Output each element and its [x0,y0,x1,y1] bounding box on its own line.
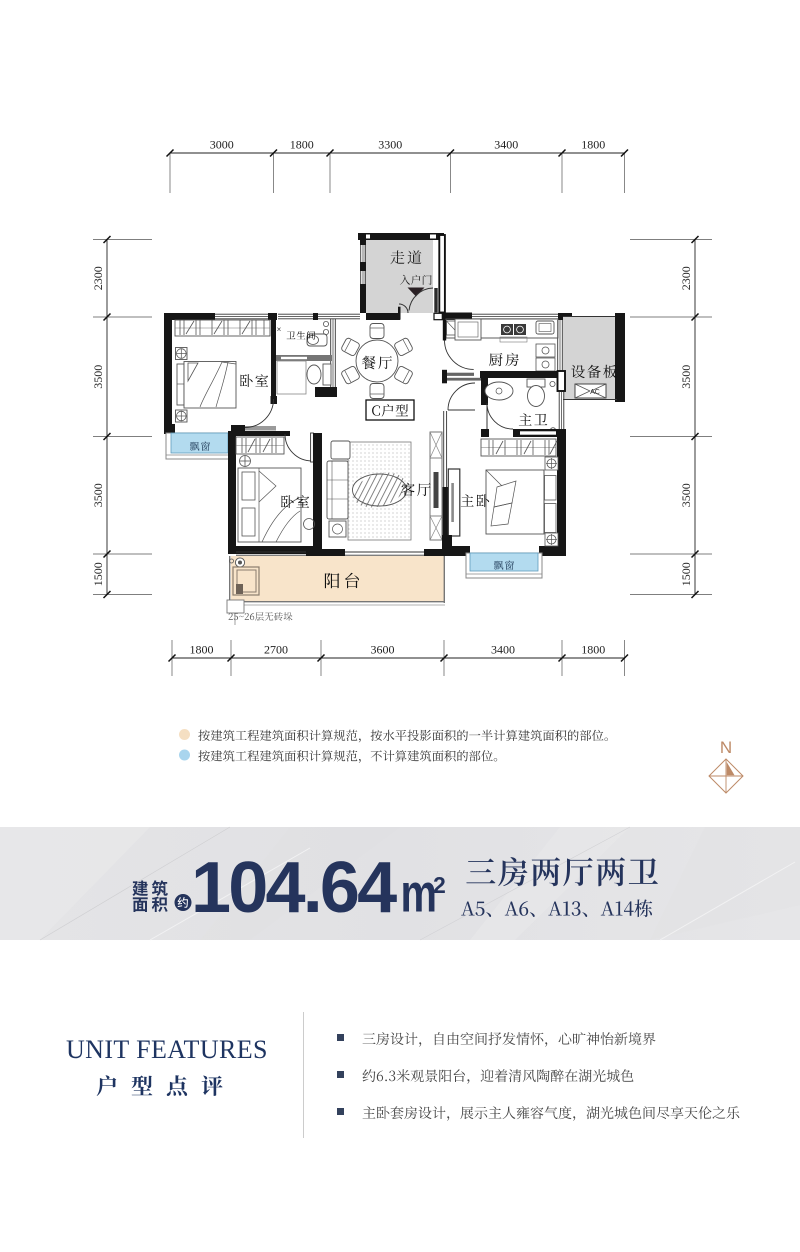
svg-text:1800: 1800 [190,643,214,657]
svg-text:×: × [277,325,282,334]
svg-text:1800: 1800 [581,643,605,657]
svg-text:2700: 2700 [264,643,288,657]
svg-text:2300: 2300 [91,266,105,290]
svg-text:104.64: 104.64 [191,848,397,928]
svg-text:1500: 1500 [679,562,693,586]
svg-text:m: m [401,864,437,924]
svg-text:3000: 3000 [210,138,234,152]
svg-text:3500: 3500 [679,365,693,389]
svg-text:3400: 3400 [491,643,515,657]
svg-text:1500: 1500 [91,562,105,586]
svg-text:3300: 3300 [378,138,402,152]
svg-text:N: N [720,738,732,757]
svg-text:3600: 3600 [371,643,395,657]
svg-text:3500: 3500 [91,483,105,507]
svg-text:1800: 1800 [581,138,605,152]
svg-text:2300: 2300 [679,266,693,290]
svg-text:3500: 3500 [91,365,105,389]
svg-text:UNIT FEATURES: UNIT FEATURES [66,1035,268,1064]
svg-text:1800: 1800 [290,138,314,152]
svg-text:3400: 3400 [494,138,518,152]
svg-text:2: 2 [433,872,446,898]
svg-text:AC: AC [590,389,600,396]
svg-text:3500: 3500 [679,483,693,507]
